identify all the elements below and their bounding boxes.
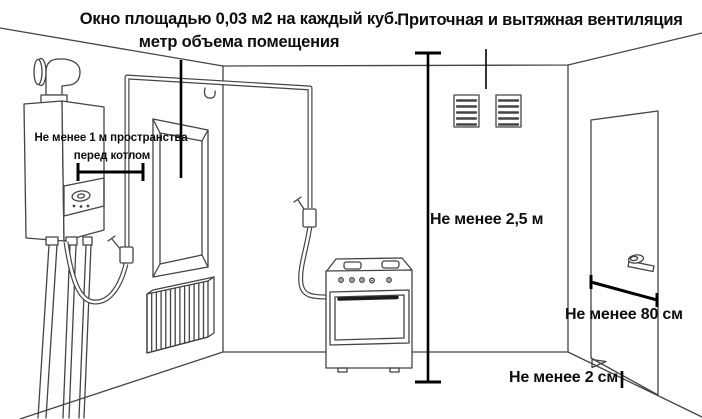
coaxial-flue-pipe (34, 59, 80, 104)
boiler-clearance-line2: перед котлом (74, 150, 150, 163)
stove-foot-right (390, 368, 399, 372)
stove-foot-left (338, 368, 347, 372)
oven-door-handle (339, 298, 397, 300)
door (591, 111, 658, 395)
ventilation-note: Приточная и вытяжная вентиляция (397, 11, 682, 29)
window-note-line2: метр объема помещения (139, 33, 340, 51)
vent-grille-right (496, 95, 521, 127)
window-note-line1: Окно площадью 0,03 м2 на каждый куб. (80, 10, 398, 28)
diagram-canvas (0, 0, 702, 419)
door-gap-label: Не менее 2 см (509, 369, 618, 387)
boiler-pipes (38, 237, 92, 418)
vent-grille-left (454, 95, 479, 127)
door-width-label: Не менее 80 см (565, 306, 683, 324)
door-gap-wedge (592, 360, 606, 368)
gas-stove (326, 258, 412, 372)
pipe-bracket (205, 88, 216, 98)
ceiling-edge (0, 28, 702, 66)
gas-pipe (66, 77, 328, 302)
door-handle (628, 254, 654, 272)
stove-gas-valve (294, 197, 316, 227)
stove-flex-hose (301, 226, 328, 297)
installation-diagram: Окно площадью 0,03 м2 на каждый куб. мет… (0, 0, 702, 419)
door-width-dimension (591, 275, 657, 307)
ventilation-grilles (454, 95, 521, 127)
ceiling-height-label: Не менее 2,5 м (430, 211, 543, 229)
radiator (147, 277, 214, 353)
boiler-clearance-line1: Не менее 1 м пространства (34, 132, 187, 145)
